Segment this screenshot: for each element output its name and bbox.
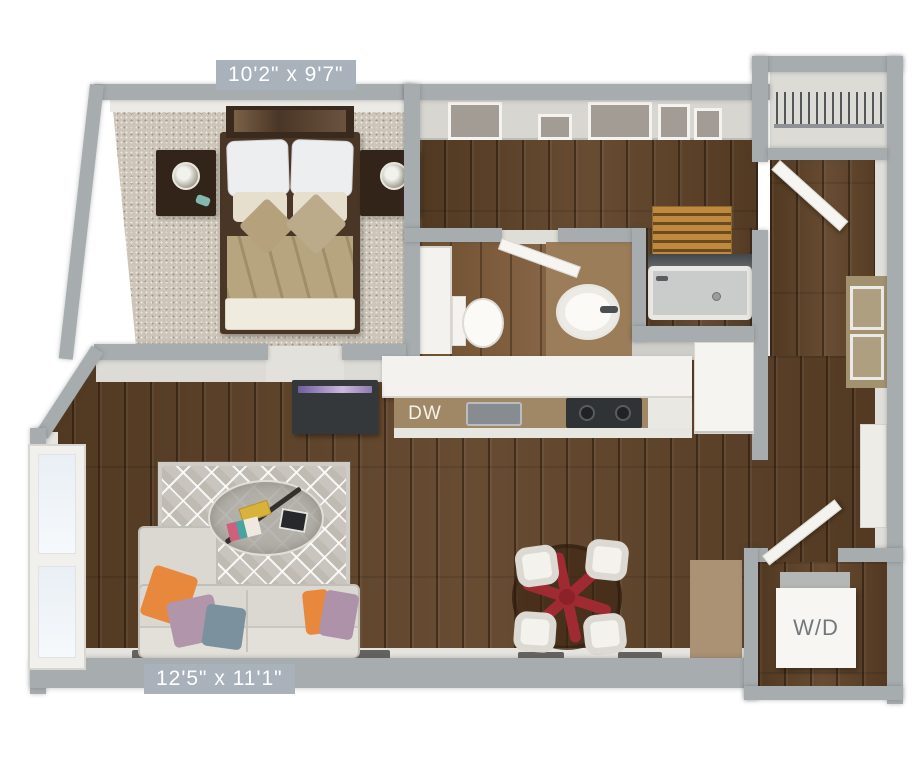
tub-drain	[712, 292, 721, 301]
dining-table-base-hub	[559, 589, 575, 605]
bedroom-south-wall-face-left	[96, 358, 266, 382]
wall-bedroom-bottom-left	[94, 344, 268, 360]
wall-laundry-top-right	[838, 548, 903, 562]
upper-cabinet-1	[448, 102, 502, 140]
wall-tub-bottom	[632, 326, 754, 342]
washer-dryer-label: W/D	[776, 588, 856, 668]
wall-laundry-bottom	[744, 686, 903, 700]
bedroom-dimension-badge: 10'2" x 9'7"	[216, 60, 356, 90]
pantry-shelves	[652, 206, 732, 258]
cooktop-burner-left	[579, 405, 595, 421]
wall-right-outer	[887, 56, 903, 704]
wall-bedroom-left-angled	[59, 84, 104, 360]
floorplan: DW W/D 10'2" x 9'7" 12'5" x 11	[0, 0, 921, 768]
wall-hall-divider	[752, 230, 768, 460]
bed-footboard-bench	[225, 298, 355, 330]
wall-bathroom-top-left	[404, 228, 502, 242]
wall-laundry-left	[744, 548, 758, 700]
upper-cabinet-4	[658, 104, 690, 140]
window-glass-upper	[38, 454, 76, 554]
toilet	[462, 298, 504, 348]
upper-cabinet-2	[538, 114, 572, 140]
washer-dryer: W/D	[776, 588, 856, 668]
sofa-seam	[246, 590, 248, 652]
pillow-slate	[201, 603, 246, 650]
lamp-left	[172, 162, 200, 190]
bed-pillow-right	[290, 139, 354, 197]
window-glass-lower	[38, 566, 76, 658]
sink-faucet	[600, 306, 618, 313]
wall-shelf-2	[850, 334, 884, 380]
upper-cabinet-3	[588, 102, 652, 140]
coffee-table-tablet	[278, 508, 308, 533]
linen-cabinet	[420, 246, 452, 354]
tub-faucet	[656, 276, 668, 281]
wall-kitchen-top	[404, 84, 770, 100]
wall-bottom	[30, 658, 756, 688]
dining-chair-1	[513, 543, 560, 588]
dining-chair-3	[513, 611, 558, 654]
wall-shelf-1	[850, 286, 884, 330]
closet-hangers	[776, 92, 882, 124]
wall-closet-left	[752, 56, 768, 162]
wall-closet-bottom	[768, 148, 887, 160]
cooktop-burner-right	[615, 405, 631, 421]
living-room-dimension-badge: 12'5" x 11'1"	[144, 664, 295, 694]
hallway-door-panel	[860, 424, 887, 528]
dining-chair-2	[584, 538, 630, 582]
upper-cabinet-5	[694, 108, 722, 140]
kitchen-bar-counter	[382, 356, 692, 398]
dishwasher-label: DW	[402, 400, 448, 428]
wall-entry-top	[752, 56, 903, 72]
kitchen-cabinet-front	[394, 428, 692, 438]
closet-rod	[774, 124, 884, 128]
dining-chair-4	[582, 612, 628, 656]
bed-duvet	[227, 236, 353, 298]
wall-bedroom-divider	[404, 84, 420, 360]
bathtub	[648, 266, 752, 320]
laundry-side-cabinet	[690, 560, 742, 662]
wall-tub-left	[632, 228, 646, 340]
kitchen-corner-cabinet	[648, 398, 692, 430]
refrigerator	[694, 342, 754, 434]
tv-screen	[298, 386, 372, 393]
headboard-shelf-inner	[234, 110, 346, 132]
bed-pillow-left	[226, 139, 290, 197]
bedroom-doorway-threshold	[266, 346, 344, 382]
kitchen-sink	[466, 402, 522, 426]
